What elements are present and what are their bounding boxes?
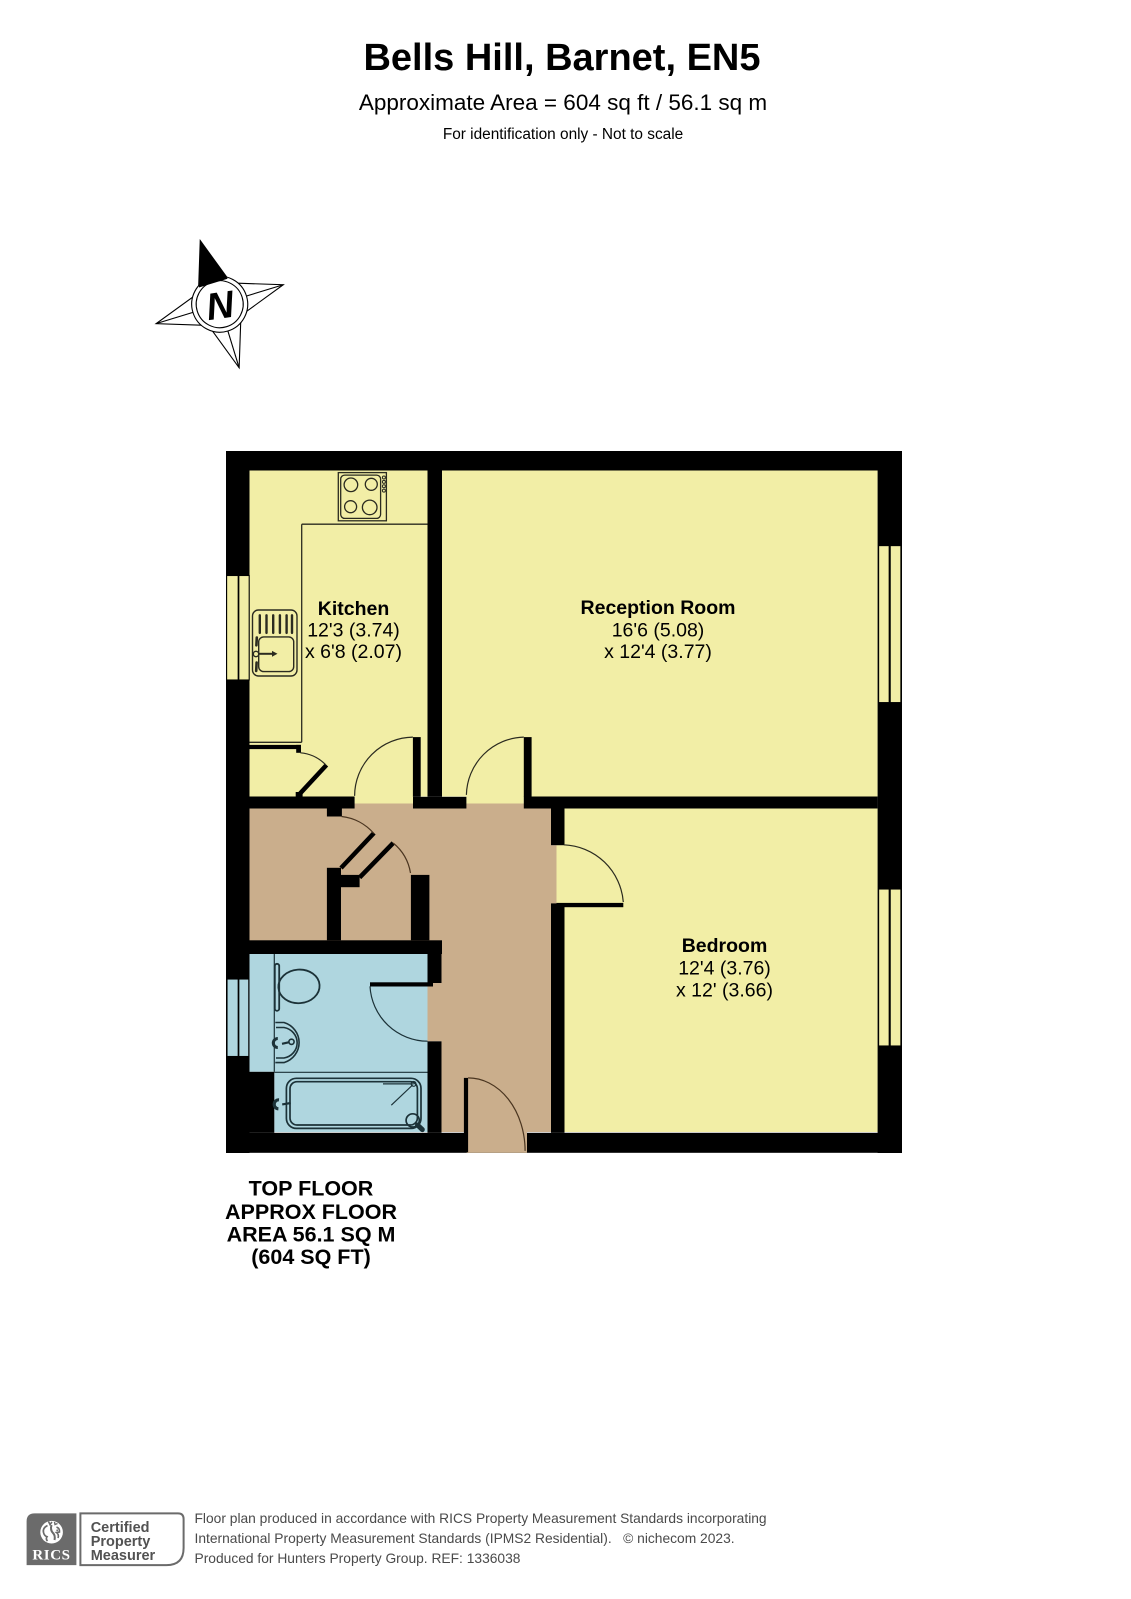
svg-text:TOP FLOOR: TOP FLOOR	[249, 1177, 374, 1201]
svg-text:12'4 (3.76): 12'4 (3.76)	[678, 958, 771, 980]
svg-text:(604 SQ FT): (604 SQ FT)	[251, 1245, 370, 1269]
svg-text:International Property Measure: International Property Measurement Stand…	[195, 1531, 735, 1546]
svg-text:For identification only - Not: For identification only - Not to scale	[443, 126, 683, 143]
svg-text:Bedroom: Bedroom	[682, 935, 768, 957]
svg-text:Approximate Area = 604 sq ft /: Approximate Area = 604 sq ft / 56.1 sq m	[359, 90, 767, 115]
svg-text:Measurer: Measurer	[91, 1548, 156, 1564]
svg-text:12'3 (3.74): 12'3 (3.74)	[307, 620, 400, 642]
svg-text:RICS: RICS	[32, 1548, 70, 1564]
svg-text:16'6 (5.08): 16'6 (5.08)	[612, 620, 705, 642]
svg-text:AREA 56.1 SQ M: AREA 56.1 SQ M	[227, 1223, 396, 1247]
svg-text:x 12' (3.66): x 12' (3.66)	[676, 980, 773, 1002]
svg-text:Kitchen: Kitchen	[318, 598, 390, 620]
svg-text:Reception Room: Reception Room	[581, 597, 736, 619]
svg-text:x 6'8 (2.07): x 6'8 (2.07)	[305, 641, 402, 663]
svg-text:APPROX FLOOR: APPROX FLOOR	[225, 1200, 397, 1224]
svg-text:Produced for Hunters Property: Produced for Hunters Property Group. REF…	[195, 1551, 521, 1566]
svg-text:Bells Hill, Barnet, EN5: Bells Hill, Barnet, EN5	[363, 37, 760, 79]
svg-text:Floor plan produced in accorda: Floor plan produced in accordance with R…	[195, 1511, 767, 1526]
svg-text:x 12'4 (3.77): x 12'4 (3.77)	[604, 641, 712, 663]
